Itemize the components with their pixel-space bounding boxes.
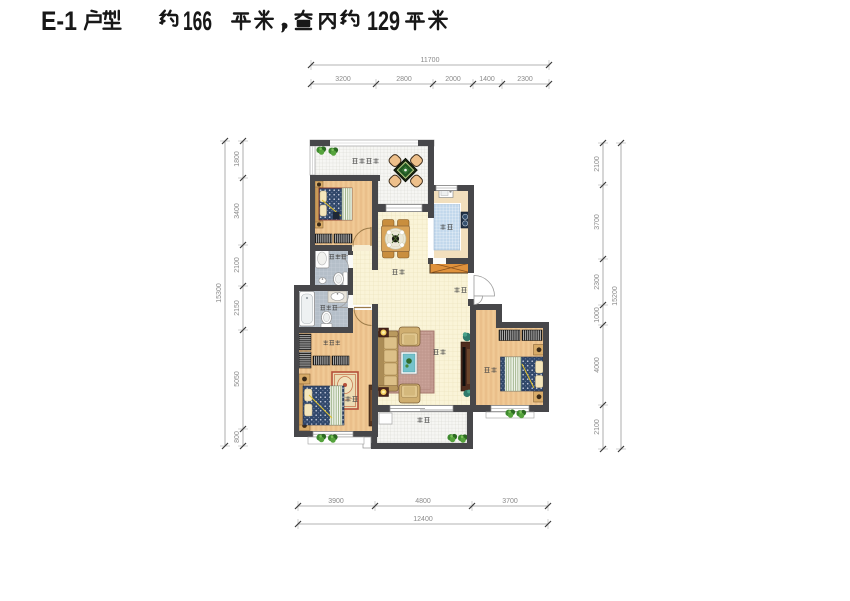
svg-text:166: 166 — [183, 6, 212, 36]
svg-text:4800: 4800 — [415, 498, 431, 505]
svg-text:12400: 12400 — [413, 516, 433, 523]
svg-text:129: 129 — [367, 6, 400, 36]
svg-text:2300: 2300 — [594, 274, 601, 290]
svg-text:2300: 2300 — [517, 76, 533, 83]
svg-text:15300: 15300 — [216, 283, 223, 303]
svg-text:5050: 5050 — [234, 371, 241, 387]
svg-text:E-1: E-1 — [41, 6, 77, 36]
svg-text:3400: 3400 — [234, 203, 241, 219]
svg-text:3200: 3200 — [335, 76, 351, 83]
svg-text:2100: 2100 — [234, 257, 241, 273]
svg-text:1800: 1800 — [234, 151, 241, 167]
svg-text:2100: 2100 — [594, 419, 601, 435]
svg-text:800: 800 — [234, 431, 241, 443]
svg-text:15200: 15200 — [612, 286, 619, 306]
svg-text:4000: 4000 — [594, 357, 601, 373]
svg-text:3900: 3900 — [328, 498, 344, 505]
svg-text:1400: 1400 — [479, 76, 495, 83]
svg-text:1000: 1000 — [594, 307, 601, 323]
svg-text:2000: 2000 — [445, 76, 461, 83]
svg-text:11700: 11700 — [421, 57, 440, 64]
svg-text:2150: 2150 — [234, 300, 241, 316]
svg-text:3700: 3700 — [502, 498, 518, 505]
svg-text:3700: 3700 — [594, 214, 601, 230]
svg-text:2800: 2800 — [396, 76, 412, 83]
svg-text:2100: 2100 — [594, 156, 601, 172]
